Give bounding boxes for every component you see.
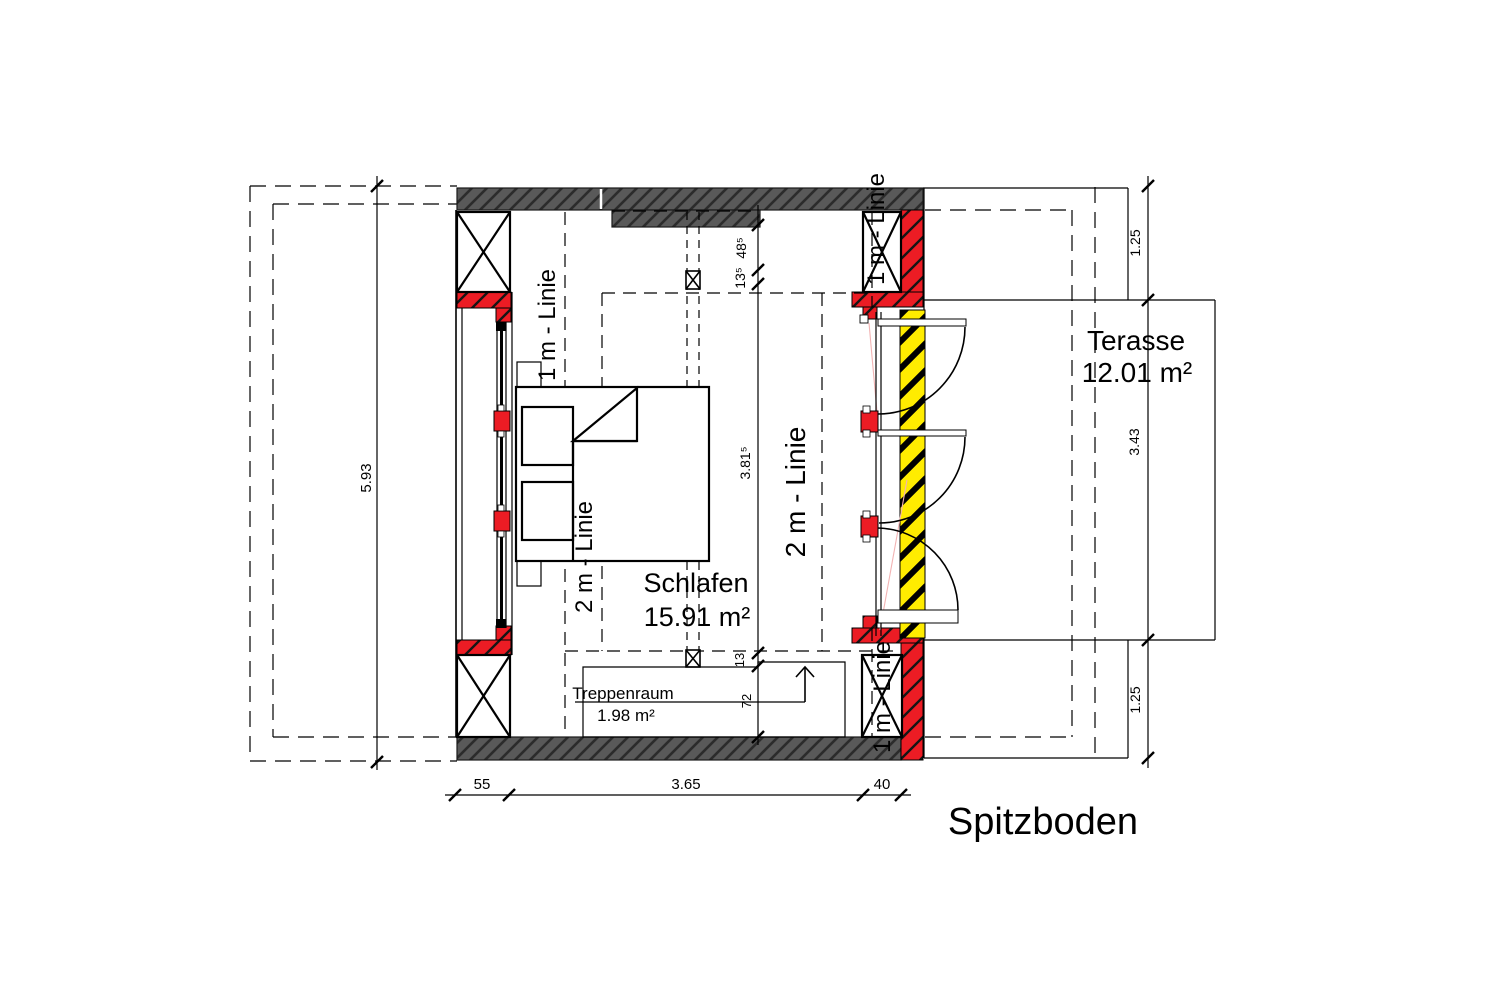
dim-right-middle: 3.43 [1126, 428, 1142, 455]
room-label-schlafen: Schlafen [643, 568, 748, 598]
label-2m-linie-left: 2 m - Linie [571, 501, 598, 613]
nightstand-bottom [517, 561, 541, 586]
red-segment-top-left [457, 292, 511, 308]
door-hinge-2 [861, 516, 878, 537]
dim-top-segment-2: 13⁵ [732, 267, 748, 288]
door-leaf-top [878, 319, 966, 326]
room-label-terasse: Terasse [1087, 325, 1185, 356]
red-segment-bottom-left [457, 640, 511, 655]
floor-plan-drawing: 5.93 1.25 3.43 1.25 48⁵ 13⁵ 3.81⁵ 13 72 … [0, 0, 1500, 1000]
plan-title: Spitzboden [948, 801, 1138, 843]
window-frame-block-top [496, 322, 506, 331]
dim-right-bottom: 1.25 [1127, 686, 1143, 713]
room-area-treppenraum: 1.98 m² [597, 706, 655, 725]
pillow-1 [522, 407, 573, 465]
dim-stair-width: 72 [739, 694, 754, 708]
door-leaf-bottom [878, 610, 958, 623]
room-area-terasse: 12.01 m² [1082, 357, 1193, 388]
label-1m-linie-bottom-right: 1 m - Linie [869, 641, 896, 753]
bed [516, 362, 709, 586]
door-threshold-yellow [900, 310, 925, 638]
label-1m-linie-top-right: 1 m - Linie [863, 173, 890, 285]
label-1m-linie-left: 1 m - Linie [534, 269, 561, 381]
dim-left-total: 5.93 [358, 463, 375, 492]
red-stub-bottom-right [863, 616, 877, 628]
wall-bottom [457, 737, 901, 760]
red-column-bottom-right [901, 643, 923, 760]
door-anchor-top [860, 315, 868, 323]
window-transom-1 [494, 411, 510, 431]
window-frame-block-bottom [496, 619, 506, 628]
dim-stair-offset: 13 [732, 653, 747, 667]
pillow-2 [522, 482, 573, 540]
label-2m-linie-right: 2 m - Linie [780, 427, 811, 558]
dim-bottom-segment-3: 40 [874, 776, 891, 793]
door-leaf-middle [878, 430, 966, 436]
room-label-treppenraum: Treppenraum [572, 684, 673, 703]
wall-top [457, 188, 923, 210]
pier-top-left [457, 212, 510, 292]
red-stub-top-left [496, 308, 511, 322]
red-stub-bottom-left [496, 626, 511, 640]
dim-bottom-segment-1: 55 [474, 776, 491, 793]
pier-bottom-left [457, 655, 510, 737]
wall-top-ledge [612, 210, 760, 227]
floor-plan: 5.93 1.25 3.43 1.25 48⁵ 13⁵ 3.81⁵ 13 72 … [0, 0, 1500, 1005]
room-area-schlafen: 15.91 m² [644, 602, 751, 632]
canvas-background [0, 0, 1500, 1000]
dim-room-depth: 3.81⁵ [737, 446, 753, 479]
dim-right-top: 1.25 [1127, 229, 1143, 256]
dim-bottom-segment-2: 3.65 [671, 776, 700, 793]
window-transom-2 [494, 511, 510, 531]
dim-top-segment-1: 48⁵ [733, 237, 749, 258]
red-band-top-right [852, 292, 923, 307]
door-hinge-1 [861, 411, 878, 432]
